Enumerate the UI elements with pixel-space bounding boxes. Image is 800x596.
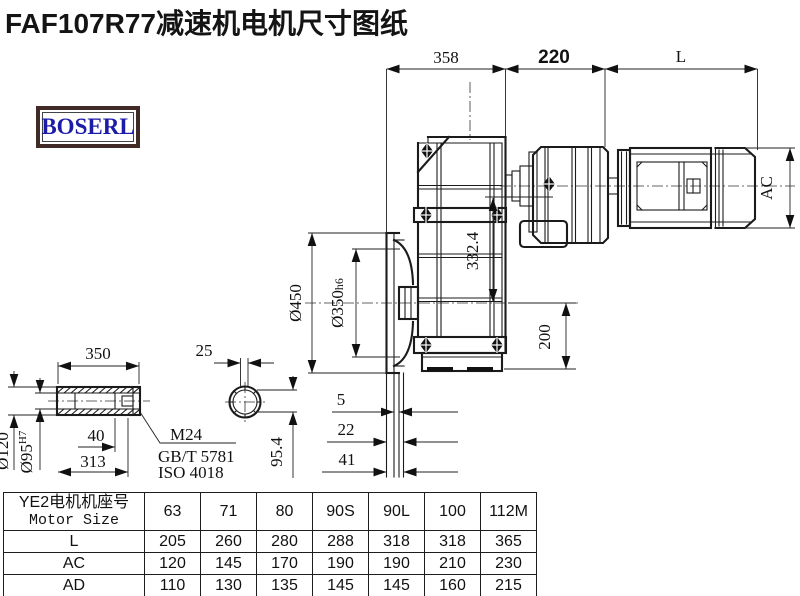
motor-size-table: YE2电机机座号 Motor Size 63 71 80 90S 90L 100… [3, 492, 537, 596]
table-cell: 210 [425, 553, 481, 575]
table-cell: 190 [369, 553, 425, 575]
dim-200: 200 [535, 324, 554, 350]
dim-350: 350 [85, 344, 111, 363]
col-112m: 112M [481, 493, 537, 531]
dim-350h6: Ø350h6 [328, 278, 347, 328]
dim-L: L [676, 47, 686, 66]
standard-iso: ISO 4018 [158, 463, 224, 482]
dimension-labels: 358 220 L AC Ø450 Ø350h6 332.4 200 5 22 … [0, 47, 776, 482]
table-cell: 280 [257, 531, 313, 553]
table-cell: 215 [481, 575, 537, 596]
thread-label: M24 [170, 425, 203, 444]
dim-25: 25 [196, 341, 213, 360]
table-header-row: YE2电机机座号 Motor Size 63 71 80 90S 90L 100… [4, 493, 537, 531]
table-cell: 318 [425, 531, 481, 553]
table-cell: 160 [425, 575, 481, 596]
table-cell: 365 [481, 531, 537, 553]
table-cell: 145 [201, 553, 257, 575]
table-cell: 260 [201, 531, 257, 553]
header-en: Motor Size [4, 512, 144, 529]
table-cell: 120 [145, 553, 201, 575]
table-cell: 130 [201, 575, 257, 596]
table-cell: 145 [313, 575, 369, 596]
dim-41: 41 [339, 450, 356, 469]
dimension-drawing: 358 220 L AC Ø450 Ø350h6 332.4 200 5 22 … [0, 0, 800, 492]
table-cell: 145 [369, 575, 425, 596]
row-label: AD [4, 575, 145, 596]
col-63: 63 [145, 493, 201, 531]
row-label: L [4, 531, 145, 553]
table-cell: 190 [313, 553, 369, 575]
table-row-AC: AC 120 145 170 190 190 210 230 [4, 553, 537, 575]
table-row-L: L 205 260 280 288 318 318 365 [4, 531, 537, 553]
table-cell: 110 [145, 575, 201, 596]
dim-220: 220 [538, 47, 570, 68]
dim-313: 313 [80, 452, 106, 471]
dim-358: 358 [433, 48, 459, 67]
table-cell: 205 [145, 531, 201, 553]
table-cell: 230 [481, 553, 537, 575]
gearbox-housing [414, 137, 506, 372]
header-cn: YE2电机机座号 [4, 494, 144, 512]
dim-120: Ø120 [0, 432, 12, 470]
table-cell: 318 [369, 531, 425, 553]
dim-95-4: 95.4 [267, 437, 286, 467]
dim-40: 40 [88, 426, 105, 445]
fan-cowl [711, 148, 755, 228]
output-flange [387, 233, 419, 477]
motor [608, 148, 755, 228]
dim-332: 332.4 [463, 231, 482, 270]
dim-450: Ø450 [286, 284, 305, 322]
col-90s: 90S [313, 493, 369, 531]
col-80: 80 [257, 493, 313, 531]
dim-95: Ø95H7 [17, 430, 36, 473]
col-90l: 90L [369, 493, 425, 531]
table-row-AD: AD 110 130 135 145 145 160 215 [4, 575, 537, 596]
dim-22: 22 [338, 420, 355, 439]
table-cell: 135 [257, 575, 313, 596]
col-100: 100 [425, 493, 481, 531]
row-label: AC [4, 553, 145, 575]
table-cell: 170 [257, 553, 313, 575]
dim-AC: AC [757, 176, 776, 200]
col-71: 71 [201, 493, 257, 531]
dim-5: 5 [337, 390, 346, 409]
table-header-cell: YE2电机机座号 Motor Size [4, 493, 145, 531]
table-cell: 288 [313, 531, 369, 553]
dimension-lines [8, 69, 795, 478]
drawing-sheet: FAF107R77减速机电机尺寸图纸 BOSERL [0, 0, 800, 596]
